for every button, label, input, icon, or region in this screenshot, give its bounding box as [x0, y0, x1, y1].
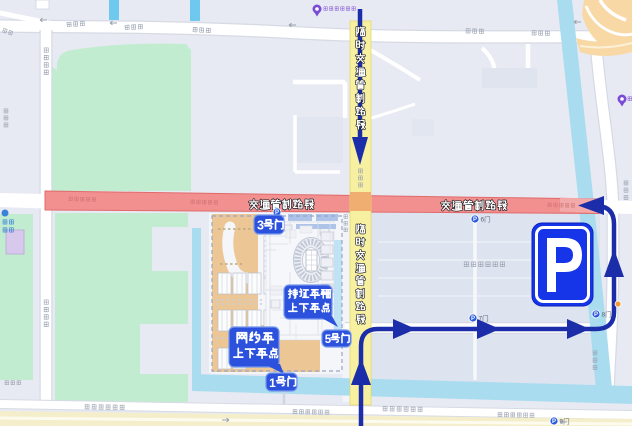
svg-text:1: 1: [269, 376, 276, 390]
svg-text:6门: 6门: [481, 215, 491, 224]
svg-text:8门: 8门: [602, 310, 612, 319]
svg-text:P: P: [471, 316, 475, 322]
svg-text:P: P: [473, 217, 477, 223]
svg-text:P: P: [594, 312, 598, 318]
svg-text:P: P: [552, 419, 556, 425]
svg-text:3: 3: [257, 219, 264, 233]
svg-text:7门: 7门: [479, 314, 489, 323]
svg-text:5: 5: [325, 334, 332, 346]
